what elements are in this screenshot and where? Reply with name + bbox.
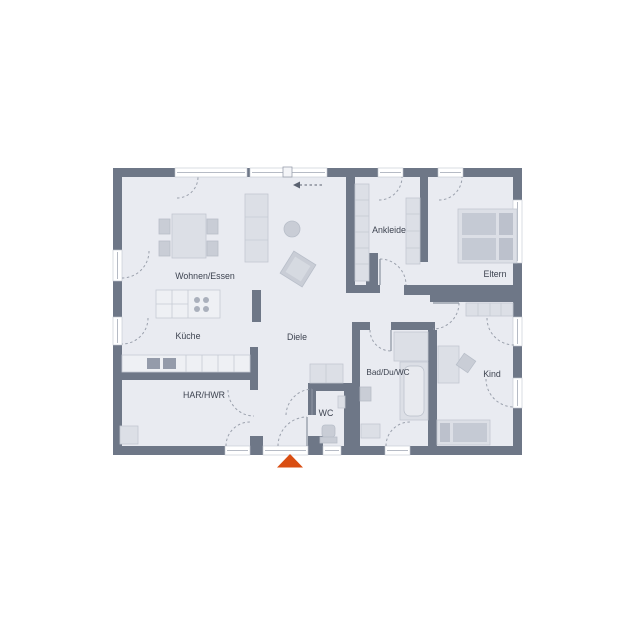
- wall-hwr-flur-upper: [250, 347, 258, 390]
- toilet-cistern-icon: [320, 437, 337, 443]
- wall-kind-north: [430, 293, 522, 302]
- toilet-icon: [322, 425, 335, 437]
- room-label-kind: Kind: [483, 369, 501, 379]
- pillow-icon: [499, 238, 513, 260]
- wardrobe-icon: [466, 303, 513, 316]
- chair-icon: [207, 241, 218, 256]
- sink-basin-icon: [163, 358, 176, 369]
- radiator-icon: [338, 396, 345, 408]
- hob-burner-icon: [194, 306, 200, 312]
- chair-icon: [159, 241, 170, 256]
- hob-burner-icon: [203, 297, 209, 303]
- sliding-door-post: [283, 167, 292, 177]
- room-label-eltern: Eltern: [484, 269, 507, 279]
- furniture-eltern: [458, 209, 517, 263]
- wardrobe-icon: [355, 184, 369, 281]
- pillow-icon: [499, 213, 513, 235]
- sideboard-diele-icon: [310, 364, 343, 383]
- floorplan-page: Wohnen/Essen Küche Diele Ankleide Eltern…: [0, 0, 636, 636]
- room-label-ankleide: Ankleide: [372, 225, 406, 235]
- pillow-icon: [440, 423, 450, 442]
- wall-ankleide-eltern: [420, 177, 428, 262]
- mattress-icon: [462, 213, 496, 235]
- chair-icon: [207, 219, 218, 234]
- wall-kueche-diele-stub: [252, 290, 261, 322]
- room-label-wohnen-essen: Wohnen/Essen: [175, 271, 235, 281]
- mattress-icon: [462, 238, 496, 260]
- desk-icon: [438, 346, 459, 383]
- room-label-wc: WC: [319, 408, 334, 418]
- sideboard-icon: [245, 194, 268, 262]
- wall-kueche-hwr: [113, 372, 254, 380]
- room-label-bad: Bad/Du/WC: [366, 368, 409, 377]
- wall-wc-east: [344, 383, 352, 446]
- wall-bad-north-right: [391, 322, 435, 330]
- hob-burner-icon: [203, 306, 209, 312]
- chair-icon: [159, 219, 170, 234]
- floorplan-drawing: Wohnen/Essen Küche Diele Ankleide Eltern…: [0, 0, 636, 636]
- wall-bad-kind: [428, 330, 437, 446]
- sink-basin-icon: [147, 358, 160, 369]
- room-label-diele: Diele: [287, 332, 307, 342]
- appliance-icon: [120, 426, 138, 444]
- room-label-har-hwr: HAR/HWR: [183, 390, 225, 400]
- mattress-icon: [453, 423, 487, 442]
- hob-burner-icon: [194, 297, 200, 303]
- toilet-icon: [360, 387, 371, 401]
- shower-icon: [394, 332, 428, 361]
- wall-bad-west: [352, 322, 360, 446]
- washbasin-icon: [361, 424, 380, 438]
- entrance-arrow-icon: [277, 454, 303, 468]
- wall-wohnen-ankleide: [346, 177, 355, 285]
- room-label-kueche: Küche: [176, 331, 201, 341]
- round-table-icon: [284, 221, 300, 237]
- furniture-hwr: [120, 426, 138, 444]
- dining-table-icon: [172, 214, 206, 258]
- wall-hwr-flur-lower: [250, 436, 263, 446]
